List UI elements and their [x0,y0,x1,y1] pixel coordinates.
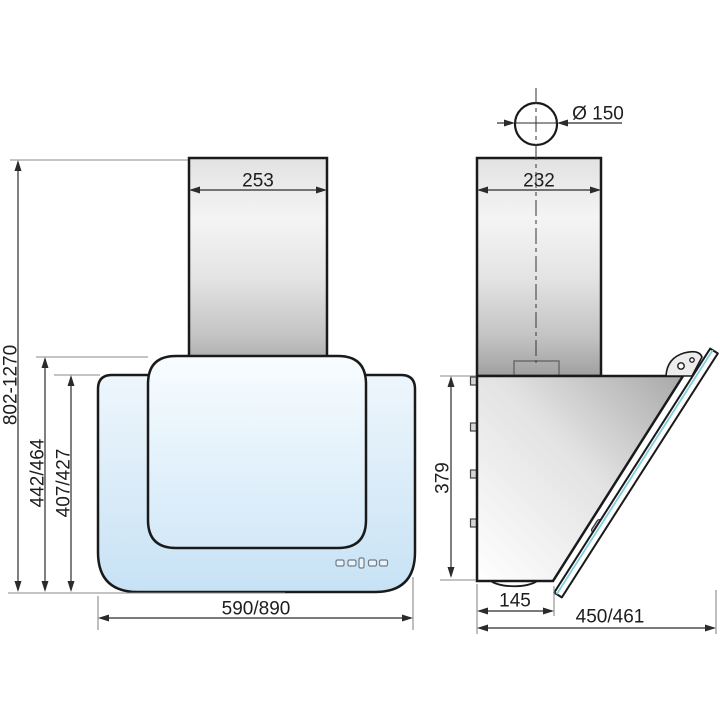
dim-label-base-depth: 145 [499,592,531,611]
dim-label-chimney-width: 253 [242,172,274,191]
touch-key-5-icon [380,560,388,566]
front-glass-panel [148,356,366,548]
dim-label-glass-height: 442/464 [29,439,48,508]
touch-key-2-icon [348,560,356,566]
dim-label-chimney-depth: 232 [523,172,555,191]
dim-label-body-height: 407/427 [55,449,74,518]
touch-key-1-icon [336,560,344,566]
touch-key-4-icon [369,560,377,566]
dim-label-total-depth: 450/461 [576,608,645,627]
cooker-hood-dimension-drawing: 253 802-1270 442/464 407/427 590/890 Ø 1… [0,0,720,720]
front-view [98,158,415,592]
dim-label-height-range: 802-1270 [2,345,21,425]
touch-key-3-icon [359,558,364,568]
dim-label-duct-diameter: Ø 150 [572,105,624,124]
hinge-pin-icon [678,363,684,369]
dim-label-side-height: 379 [434,462,453,494]
side-hood-body [477,376,683,581]
hinge-pin-icon [690,358,694,362]
side-view [471,88,718,597]
dim-label-body-width: 590/890 [222,600,291,619]
